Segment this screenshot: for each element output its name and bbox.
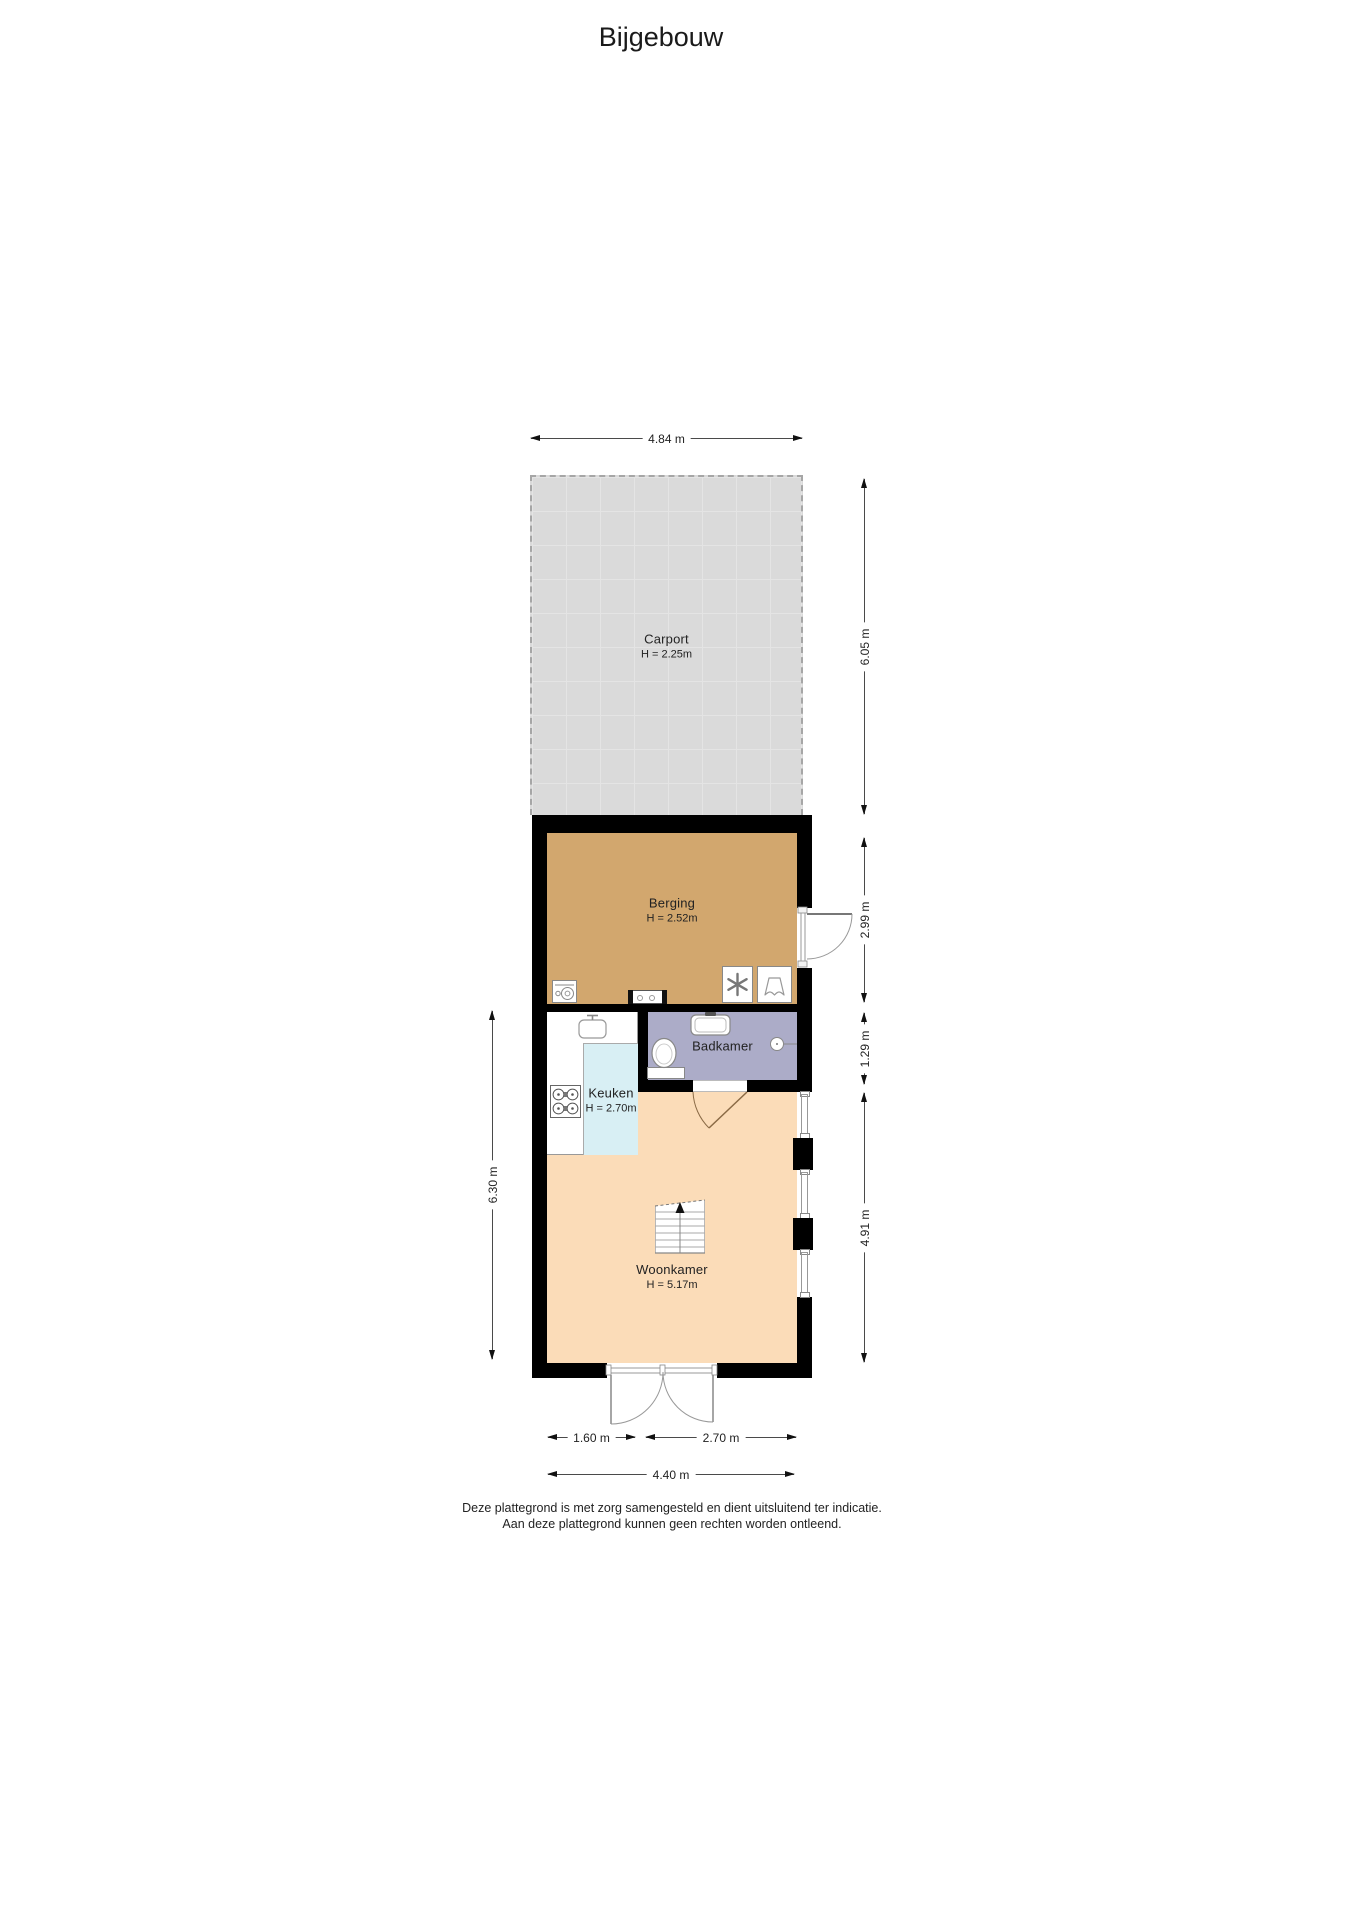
kitchen-sink-icon: [577, 1014, 608, 1040]
boiler-icon: [757, 966, 792, 1003]
dim-badkamer-depth-label: 1.29 m: [858, 1024, 872, 1073]
carport-area: Carport H = 2.25m: [530, 475, 803, 815]
window-icon: [797, 1092, 812, 1138]
berging-height-label: H = 2.52m: [547, 912, 797, 924]
keuken-label: Keuken H = 2.70m: [584, 1085, 638, 1114]
building-outline: Berging H = 2.52m Woonkamer H = 5.17m Ba…: [532, 815, 812, 1378]
window-icon: [797, 1250, 812, 1297]
dim-woonkamer-depth-label: 4.91 m: [858, 1203, 872, 1252]
berging-name: Berging: [547, 895, 797, 910]
disclaimer-text: Deze plattegrond is met zorg samengestel…: [372, 1500, 972, 1533]
utility-sink-icon: [628, 990, 667, 1004]
wall-pillar: [793, 1138, 813, 1170]
toilet-icon: [647, 1037, 685, 1079]
keuken-height-label: H = 2.70m: [584, 1102, 638, 1114]
disclaimer-line2: Aan deze plattegrond kunnen geen rechten…: [372, 1516, 972, 1532]
berging-label: Berging H = 2.52m: [547, 895, 797, 924]
woonkamer-height-label: H = 5.17m: [547, 1279, 797, 1291]
dim-woonkamer-depth: 4.91 m: [857, 1092, 872, 1363]
bathroom-sink-icon: [690, 1012, 731, 1036]
dim-keuken-width: 1.60 m: [547, 1430, 636, 1445]
washing-machine-icon: [552, 980, 577, 1003]
dim-carport-depth-label: 6.05 m: [858, 622, 872, 671]
floorplan-canvas: Bijgebouw 4.84 m Carport H = 2.25m Bergi…: [0, 0, 1358, 1920]
window-icon: [797, 1170, 812, 1218]
dim-carport-width: 4.84 m: [530, 431, 803, 446]
badkamer-door-opening: [693, 1080, 747, 1092]
dim-carport-width-label: 4.84 m: [642, 432, 691, 446]
dim-woonkamer-width-label: 2.70 m: [697, 1431, 746, 1445]
carport-name: Carport: [532, 632, 801, 647]
dim-building-width: 4.40 m: [547, 1467, 795, 1482]
dim-interior-left-label: 6.30 m: [486, 1161, 500, 1210]
wall-badkamer-woonkamer-left: [638, 1080, 693, 1092]
wall-badkamer-woonkamer-right: [747, 1080, 797, 1092]
keuken-name: Keuken: [584, 1085, 638, 1100]
woonkamer-name: Woonkamer: [547, 1262, 797, 1277]
ventilation-unit-icon: [722, 966, 753, 1003]
wall-light-icon: [770, 1037, 784, 1051]
dim-carport-depth: 6.05 m: [857, 478, 872, 815]
dim-berging-depth: 2.99 m: [857, 837, 872, 1003]
berging-door-opening: [797, 908, 812, 968]
dim-keuken-width-label: 1.60 m: [567, 1431, 616, 1445]
page-title: Bijgebouw: [521, 22, 801, 53]
disclaimer-line1: Deze plattegrond is met zorg samengestel…: [372, 1500, 972, 1516]
stove-icon: [550, 1085, 581, 1118]
wall-pillar: [793, 1218, 813, 1250]
dim-berging-depth-label: 2.99 m: [858, 896, 872, 945]
carport-height-label: H = 2.25m: [532, 649, 801, 661]
dim-interior-left: 6.30 m: [485, 1010, 500, 1360]
dim-woonkamer-width: 2.70 m: [645, 1430, 797, 1445]
keuken-area: Keuken H = 2.70m: [583, 1043, 638, 1155]
front-door-opening: [607, 1363, 717, 1378]
woonkamer-label: Woonkamer H = 5.17m: [547, 1262, 797, 1291]
stairs-icon: [655, 1198, 705, 1255]
carport-label: Carport H = 2.25m: [532, 632, 801, 661]
dim-building-width-label: 4.40 m: [647, 1468, 696, 1482]
dim-badkamer-depth: 1.29 m: [857, 1012, 872, 1085]
